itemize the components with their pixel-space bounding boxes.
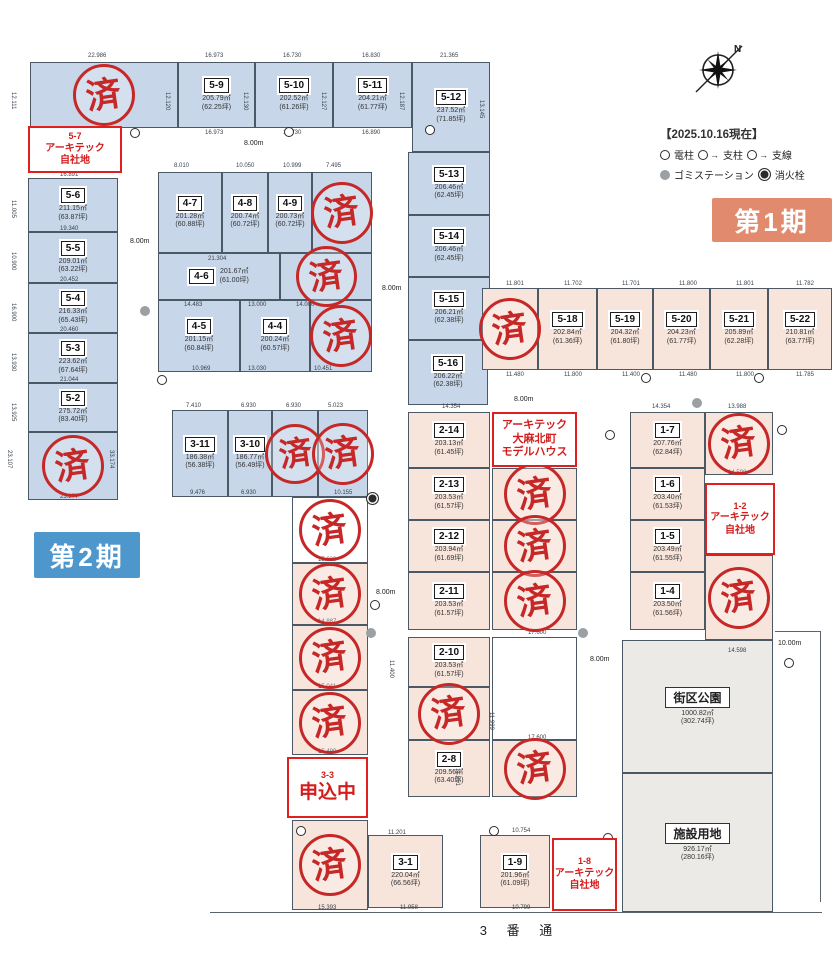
electric-pole-icon <box>370 600 380 610</box>
special-box-line: 自社地 <box>60 155 90 168</box>
fire-hydrant-icon <box>366 492 379 505</box>
lot-5-6: 5-6211.15㎡(63.87坪) <box>28 178 118 232</box>
sold-stamp: 済 <box>299 499 361 561</box>
lot-area: 203.50㎡(61.56坪) <box>653 601 682 618</box>
lot-sold: 済 <box>280 253 372 300</box>
dimension-label: 8.010 <box>174 163 189 169</box>
dimension-label: 19.340 <box>60 226 78 232</box>
lot-number: 2-14 <box>434 423 464 438</box>
lot-5-14: 5-14206.46㎡(62.45坪) <box>408 215 490 277</box>
lot-area: 204.21㎡(61.77坪) <box>358 95 387 112</box>
phase1-tag: 第1期 <box>712 198 832 242</box>
lot-2-10: 2-10203.53㎡(61.57坪) <box>408 637 490 687</box>
dimension-label: 11.785 <box>796 372 814 378</box>
lot-area: 186.38㎡(56.38坪) <box>185 454 214 471</box>
lot-sold: 済 <box>292 690 368 755</box>
electric-pole-icon <box>784 658 794 668</box>
road-width-label: 8.00m <box>514 396 533 403</box>
lot-area: 201.15㎡(60.84坪) <box>184 336 213 353</box>
arrow-icon: → <box>759 150 768 160</box>
lot-area: 201.28㎡(60.88坪) <box>175 213 204 230</box>
lot-5-4: 5-4216.33㎡(65.43坪) <box>28 283 118 333</box>
dimension-label: 11.999 <box>488 712 494 730</box>
road-line-right-top <box>775 631 821 632</box>
lot-2-13: 2-13203.53㎡(61.57坪) <box>408 468 490 520</box>
dimension-label: 21.304 <box>208 256 226 262</box>
dimension-label: 11.800 <box>736 372 754 378</box>
road-width-label: 8.00m <box>244 140 263 147</box>
dimension-label: 5.023 <box>328 403 343 409</box>
special-box-line: 1-2 <box>733 501 746 512</box>
electric-pole-icon <box>157 375 167 385</box>
lot-area: 206.46㎡(62.45坪) <box>434 184 463 201</box>
lot-area: 207.76㎡(62.84坪) <box>653 440 682 457</box>
lot-area: 206.46㎡(62.45坪) <box>434 246 463 263</box>
dimension-label: 10.900 <box>10 252 16 270</box>
sold-stamp: 済 <box>299 627 361 689</box>
sold-stamp: 済 <box>504 515 566 577</box>
lot-3-1: 3-1220.04㎡(66.56坪) <box>368 835 443 908</box>
guy-wire-icon <box>747 150 757 160</box>
phase2-tag: 第2期 <box>34 532 140 578</box>
lot-number: 5-15 <box>434 292 464 307</box>
road-width-label: 8.00m <box>130 238 149 245</box>
dimension-label: 16.973 <box>205 130 223 136</box>
lot-area: 1000.82㎡(302.74坪) <box>681 710 714 727</box>
electric-pole-icon <box>130 128 140 138</box>
lot-sold: 済 <box>310 300 372 372</box>
sold-stamp: 済 <box>299 834 361 896</box>
lot-5-22: 5-22210.81㎡(63.77坪) <box>768 288 832 370</box>
lot-number: 5-22 <box>785 312 815 327</box>
lot-number: 5-13 <box>434 167 464 182</box>
dimension-label: 14.598 <box>728 648 746 654</box>
lot-area: 205.79㎡(62.25坪) <box>202 95 231 112</box>
dimension-label: 11.702 <box>564 281 582 287</box>
lot-area: 200.74㎡(60.72坪) <box>230 213 259 230</box>
lot-number: 4-6 <box>189 269 213 284</box>
dimension-label: 12.187 <box>398 92 404 110</box>
sold-stamp: 済 <box>708 413 770 475</box>
legend-row-poles: 電柱 → 支柱 → 支線 <box>660 147 836 162</box>
lot-5-3: 5-3223.62㎡(67.64坪) <box>28 333 118 383</box>
label-3-3-pending: 3-3申込中 <box>287 757 368 818</box>
garbage-station-icon <box>660 170 670 180</box>
lot-5-2: 5-2275.72㎡(83.40坪) <box>28 383 118 432</box>
lot-number: 2-10 <box>434 645 464 660</box>
lot-area: 203.94㎡(61.69坪) <box>434 546 463 563</box>
lot-number: 5-16 <box>433 356 463 371</box>
lot-3-11: 3-11186.38㎡(56.38坪) <box>172 410 228 497</box>
lot-4-7: 4-7201.28㎡(60.88坪) <box>158 172 222 253</box>
lot-sold: 済 <box>492 468 577 520</box>
legend-label-pole: 電柱 <box>674 147 694 162</box>
lot-number: 5-19 <box>610 312 640 327</box>
dimension-label: 11.958 <box>400 905 418 911</box>
lot-number: 5-20 <box>666 312 696 327</box>
lot-5-19: 5-19204.32㎡(61.80坪) <box>597 288 653 370</box>
lot-area: 202.52㎡(61.26坪) <box>279 95 308 112</box>
legend-label-gomi: ゴミステーション <box>674 167 754 182</box>
road-width-label: 8.00m <box>376 589 395 596</box>
lot-area: 926.17㎡(280.16坪) <box>681 846 714 863</box>
lot-number: 2-13 <box>434 477 464 492</box>
dimension-label: 16.973 <box>205 53 223 59</box>
lot-number: 3-11 <box>185 437 214 452</box>
lot-number: 1-9 <box>503 855 527 870</box>
lot-area: 220.04㎡(66.56坪) <box>391 872 420 889</box>
lot-sold <box>492 637 577 740</box>
lot-number: 1-4 <box>655 584 679 599</box>
dimension-label: 6.930 <box>286 403 301 409</box>
dimension-label: 12.127 <box>320 92 326 110</box>
lot-area: 209.01㎡(63.22坪) <box>58 258 87 275</box>
lot-sold: 済 <box>492 740 577 797</box>
special-box-line: 大麻北町 <box>513 433 557 447</box>
electric-pole-icon <box>284 127 294 137</box>
lot-number: 4-4 <box>263 319 287 334</box>
lot-sold: 済 <box>312 172 372 253</box>
dimension-label: 10.754 <box>512 828 530 834</box>
dimension-label: 20.460 <box>60 327 78 333</box>
dimension-label: 11.480 <box>506 372 524 378</box>
dimension-label: 14.354 <box>442 404 460 410</box>
survey-date: 【2025.10.16現在】 <box>660 126 836 142</box>
road-line-right <box>820 632 821 902</box>
dimension-label: 10.999 <box>283 163 301 169</box>
lot-area: 237.52㎡(71.85坪) <box>436 107 465 124</box>
dimension-label: 13.000 <box>248 302 266 308</box>
dimension-label: 21.044 <box>60 377 78 383</box>
special-box-line: 5-7 <box>68 131 81 142</box>
lot-area: 203.49㎡(61.55坪) <box>653 546 682 563</box>
lot-sold: 済 <box>492 572 577 630</box>
lot-number: 5-14 <box>434 229 464 244</box>
street-label: 3 番 通 <box>430 920 610 939</box>
dimension-label: 10.799 <box>512 905 530 911</box>
special-box-line: 1-8 <box>578 856 591 867</box>
garbage-station-icon <box>692 398 702 408</box>
dimension-label: 12.130 <box>242 92 248 110</box>
dimension-label: 10.451 <box>314 366 332 372</box>
dimension-label: 10.155 <box>334 490 352 496</box>
lot-sold: 済 <box>292 563 368 625</box>
dimension-label: 7.410 <box>186 403 201 409</box>
electric-pole-icon <box>425 125 435 135</box>
lot-area: 206.21㎡(62.38坪) <box>434 309 463 326</box>
lot-area: 203.53㎡(61.57坪) <box>434 662 463 679</box>
lot-2-12: 2-12203.94㎡(61.69坪) <box>408 520 490 572</box>
lot-1-7: 1-7207.76㎡(62.84坪) <box>630 412 705 468</box>
lot-4-4: 4-4200.24㎡(60.57坪) <box>240 300 310 372</box>
dimension-label: 11.005 <box>10 200 16 218</box>
label-5-7-own: 5-7アーキテック自社地 <box>28 126 122 173</box>
lot-area: 203.53㎡(61.57坪) <box>434 601 463 618</box>
legend-label-support: 支柱 <box>723 147 743 162</box>
lot-4-8: 4-8200.74㎡(60.72坪) <box>222 172 268 253</box>
dimension-label: 14.354 <box>652 404 670 410</box>
sold-stamp: 済 <box>418 683 480 745</box>
zone-label: 街区公園 <box>665 687 729 708</box>
lot-街区公園: 街区公園1000.82㎡(302.74坪) <box>622 640 773 773</box>
lot-area: 186.77㎡(56.49坪) <box>235 454 264 471</box>
sold-stamp: 済 <box>299 692 361 754</box>
lot-number: 2-12 <box>434 529 464 544</box>
electric-pole-icon <box>754 373 764 383</box>
garbage-station-icon <box>366 628 376 638</box>
lot-area: 216.33㎡(65.43坪) <box>58 308 87 325</box>
sold-stamp: 済 <box>504 738 566 800</box>
special-box-line: モデルハウス <box>502 446 568 460</box>
lot-number: 4-5 <box>187 319 211 334</box>
special-box-line: 申込中 <box>299 781 356 805</box>
lot-1-5: 1-5203.49㎡(61.55坪) <box>630 520 705 572</box>
sold-stamp: 済 <box>296 246 357 307</box>
dimension-label: 9.476 <box>190 490 205 496</box>
lot-5-21: 5-21205.89㎡(62.28坪) <box>710 288 768 370</box>
lot-number: 4-9 <box>278 196 302 211</box>
lot-number: 5-21 <box>724 312 754 327</box>
dimension-label: 16.890 <box>362 130 380 136</box>
lot-number: 5-2 <box>61 391 85 406</box>
sold-stamp: 済 <box>479 298 541 360</box>
lot-5-5: 5-5209.01㎡(63.22坪) <box>28 232 118 283</box>
lot-2-11: 2-11203.53㎡(61.57坪) <box>408 572 490 630</box>
label-1-8-own: 1-8アーキテック自社地 <box>552 838 617 911</box>
lot-5-13: 5-13206.46㎡(62.45坪) <box>408 152 490 215</box>
lot-5-15: 5-15206.21㎡(62.38坪) <box>408 277 490 340</box>
lot-1-9: 1-9201.96㎡(61.09坪) <box>480 835 550 908</box>
dimension-label: 11.701 <box>622 281 640 287</box>
lot-1-6: 1-6203.40㎡(61.53坪) <box>630 468 705 520</box>
dimension-label: 11.400 <box>388 660 394 678</box>
lot-number: 4-7 <box>178 196 202 211</box>
sold-stamp: 済 <box>311 182 373 244</box>
garbage-station-icon <box>578 628 588 638</box>
compass-rose: N <box>690 42 746 103</box>
legend-label-guy: 支線 <box>772 147 792 162</box>
dimension-label: 6.930 <box>241 490 256 496</box>
lot-sold: 済 <box>705 412 773 475</box>
lot-施設用地: 施設用地926.17㎡(280.16坪) <box>622 773 773 912</box>
garbage-station-icon <box>140 306 150 316</box>
lot-sold: 済 <box>492 520 577 572</box>
lot-number: 5-4 <box>61 291 85 306</box>
dimension-label: 11.400 <box>622 372 640 378</box>
dimension-label: 11.801 <box>736 281 754 287</box>
sold-stamp: 済 <box>504 570 566 632</box>
dimension-label: 13.988 <box>728 404 746 410</box>
lot-2-8: 2-8209.56㎡(63.40坪) <box>408 740 490 797</box>
zone-label: 施設用地 <box>665 823 729 844</box>
lot-5-16: 5-16206.22㎡(62.38坪) <box>408 340 488 405</box>
dimension-label: 12.120 <box>164 92 170 110</box>
lot-5-20: 5-20204.23㎡(61.77坪) <box>653 288 710 370</box>
sold-stamp: 済 <box>42 435 104 497</box>
special-box-line: アーキテック <box>555 868 614 881</box>
dimension-label: 10.969 <box>192 366 210 372</box>
dimension-label: 21.365 <box>440 53 458 59</box>
electric-pole-icon <box>296 826 306 836</box>
dimension-label: 15.393 <box>318 905 336 911</box>
special-box-line: アーキテック <box>710 512 769 525</box>
lot-area: 203.40㎡(61.53坪) <box>653 494 682 511</box>
lot-area: 203.53㎡(61.57坪) <box>434 494 463 511</box>
lot-number: 3-10 <box>235 437 265 452</box>
lot-sold: 済 <box>408 687 490 740</box>
lot-area: 206.22㎡(62.38坪) <box>433 373 462 390</box>
lot-4-9: 4-9200.73㎡(60.72坪) <box>268 172 312 253</box>
lot-number: 5-5 <box>61 241 85 256</box>
lot-area: 204.23㎡(61.77坪) <box>667 329 696 346</box>
lot-5-18: 5-18202.84㎡(61.36坪) <box>538 288 597 370</box>
dimension-label: 10.050 <box>236 163 254 169</box>
lot-number: 5-10 <box>279 78 309 93</box>
electric-pole-icon <box>605 430 615 440</box>
dimension-label: 12.111 <box>10 92 16 109</box>
lot-number: 5-9 <box>204 78 228 93</box>
legend-row-facilities: ゴミステーション 消火栓 <box>660 167 836 182</box>
support-pole-icon <box>698 150 708 160</box>
lot-number: 5-12 <box>436 90 466 105</box>
lot-number: 2-8 <box>437 752 461 767</box>
label-1-2-own: 1-2アーキテック自社地 <box>705 483 775 555</box>
lot-area: 205.89㎡(62.28坪) <box>724 329 753 346</box>
sold-stamp: 済 <box>310 305 372 367</box>
dimension-label: 13.030 <box>248 366 266 372</box>
dimension-label: 14.483 <box>184 302 202 308</box>
sold-stamp: 済 <box>312 423 374 485</box>
lot-1-4: 1-4203.50㎡(61.56坪) <box>630 572 705 630</box>
dimension-label: 11.800 <box>679 281 697 287</box>
lot-sold: 済 <box>292 625 368 690</box>
lot-2-14: 2-14203.13㎡(61.45坪) <box>408 412 490 468</box>
dimension-label: 6.930 <box>241 403 256 409</box>
lot-sold: 済 <box>705 555 773 640</box>
lot-sold: 済 <box>28 432 118 500</box>
dimension-label: 7.495 <box>326 163 341 169</box>
road-width-label: 8.00m <box>590 656 609 663</box>
special-box-line: アーキテック <box>45 143 104 156</box>
dimension-label: 11.800 <box>564 372 582 378</box>
lot-area: 203.13㎡(61.45坪) <box>434 440 463 457</box>
lot-number: 4-8 <box>233 196 257 211</box>
lot-area: 223.62㎡(67.64坪) <box>58 358 87 375</box>
lot-number: 3-1 <box>393 855 417 870</box>
lot-4-5: 4-5201.15㎡(60.84坪) <box>158 300 240 372</box>
dimension-label: 20.452 <box>60 277 78 283</box>
dimension-label: 16.830 <box>362 53 380 59</box>
compass-n-label: N <box>734 44 741 55</box>
lot-area: 210.81㎡(63.77坪) <box>785 329 814 346</box>
dimension-label: 16.900 <box>10 303 16 321</box>
road-line-bottom <box>210 912 822 913</box>
lot-area: 202.84㎡(61.36坪) <box>553 329 582 346</box>
special-box-line: アーキテック <box>502 419 567 433</box>
sold-stamp: 済 <box>708 567 770 629</box>
lot-number: 5-3 <box>61 341 85 356</box>
lot-area: 200.73㎡(60.72坪) <box>275 213 304 230</box>
dimension-label: 11.201 <box>388 830 406 836</box>
sold-stamp: 済 <box>73 64 135 126</box>
lot-area: 211.15㎡(63.87坪) <box>58 205 87 222</box>
dimension-label: 11.801 <box>506 281 524 287</box>
fire-hydrant-icon <box>758 168 771 181</box>
special-box-line: 3-3 <box>321 770 334 781</box>
lot-number: 1-6 <box>655 477 679 492</box>
dimension-label: 11.251 <box>454 768 460 786</box>
special-box-line: 自社地 <box>725 525 755 538</box>
dimension-label: 13.145 <box>478 100 484 118</box>
dimension-label: 13.925 <box>10 403 16 421</box>
lot-sold: 済 <box>482 288 538 370</box>
lot-area: 201.67㎡(61.00坪) <box>220 268 249 285</box>
arrow-icon: → <box>710 150 719 160</box>
lot-area: 201.96㎡(61.09坪) <box>500 872 529 889</box>
lot-number: 2-11 <box>434 584 463 599</box>
lot-sold: 済 <box>318 410 368 497</box>
lot-number: 1-7 <box>655 423 679 438</box>
dimension-label: 23.107 <box>6 450 12 468</box>
lot-number: 5-11 <box>358 78 387 93</box>
lot-sold: 済 <box>30 62 178 128</box>
dimension-label: 11.480 <box>679 372 697 378</box>
road-width-label: 10.00m <box>778 640 801 647</box>
road-width-label: 8.00m <box>382 285 401 292</box>
lot-sold: 済 <box>292 497 368 563</box>
legend: 【2025.10.16現在】 電柱 → 支柱 → 支線 ゴミステーション 消火栓 <box>660 126 836 187</box>
plan-canvas: N 【2025.10.16現在】 電柱 → 支柱 → 支線 ゴミステーション 消… <box>0 0 836 953</box>
lot-number: 1-5 <box>655 529 679 544</box>
legend-label-hydrant: 消火栓 <box>775 167 805 182</box>
dimension-label: 22.986 <box>88 53 106 59</box>
lot-number: 5-6 <box>61 188 85 203</box>
electric-pole-icon <box>641 373 651 383</box>
electric-pole-icon <box>489 826 499 836</box>
dimension-label: 16.730 <box>283 53 301 59</box>
dimension-label: 11.782 <box>796 281 814 287</box>
electric-pole-icon <box>660 150 670 160</box>
sold-stamp: 済 <box>299 563 361 625</box>
lot-area: 200.24㎡(60.57坪) <box>260 336 289 353</box>
lot-number: 5-18 <box>552 312 582 327</box>
label-model-house: アーキテック大麻北町モデルハウス <box>492 412 577 467</box>
dimension-label: 13.930 <box>10 353 16 371</box>
lot-area: 204.32㎡(61.80坪) <box>610 329 639 346</box>
electric-pole-icon <box>777 425 787 435</box>
dimension-label: 33.174 <box>108 450 114 468</box>
lot-area: 275.72㎡(83.40坪) <box>58 408 87 425</box>
special-box-line: 自社地 <box>570 880 600 893</box>
